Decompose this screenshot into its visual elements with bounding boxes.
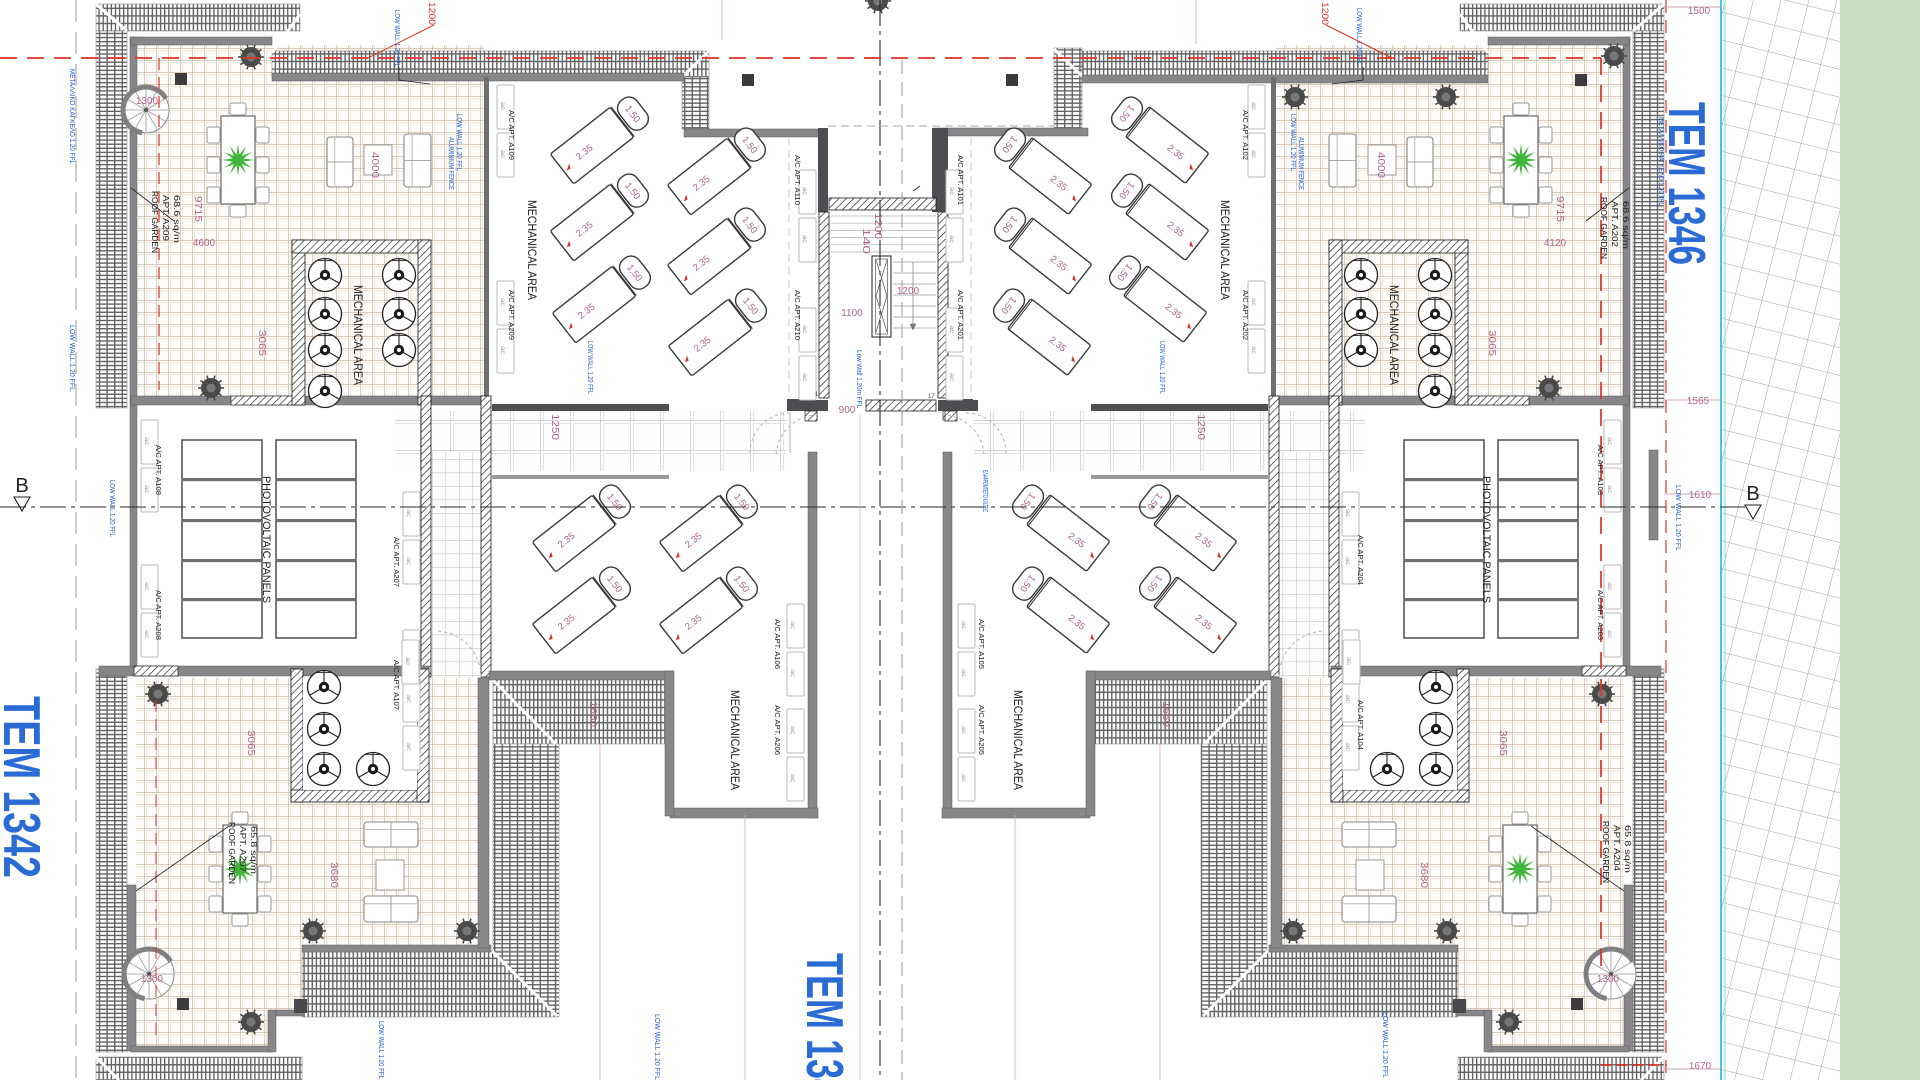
svg-text:ALUMINIUM FENCE: ALUMINIUM FENCE (1297, 137, 1306, 190)
svg-text:LOW WALL 1.20 FFL: LOW WALL 1.20 FFL (586, 341, 595, 394)
svg-text:140: 140 (860, 228, 871, 255)
svg-text:1100: 1100 (841, 308, 863, 319)
svg-text:A/C APT. A205: A/C APT. A205 (977, 705, 984, 755)
svg-text:A/C APT. A106: A/C APT. A106 (773, 619, 780, 669)
svg-text:ac: ac (1250, 346, 1257, 355)
svg-text:ac: ac (789, 621, 796, 630)
svg-text:A/C APT. A108: A/C APT. A108 (154, 445, 161, 495)
svg-text:ac: ac (960, 621, 967, 630)
svg-text:MECHANICAL AREA: MECHANICAL AREA (1218, 200, 1230, 300)
svg-text:ac: ac (1606, 630, 1613, 639)
svg-text:17: 17 (928, 394, 935, 400)
svg-text:ROOF GARDEN: ROOF GARDEN (227, 822, 236, 884)
svg-text:ac: ac (405, 743, 412, 752)
svg-text:68.6 sq/m: 68.6 sq/m (172, 195, 181, 243)
svg-text:Low Wall 1.20m FFL: Low Wall 1.20m FFL (855, 350, 864, 408)
svg-text:A/C APT. A202: A/C APT. A202 (1241, 290, 1248, 340)
svg-text:3680: 3680 (1418, 862, 1429, 889)
svg-text:A/C APT. A109: A/C APT. A109 (507, 110, 514, 160)
svg-text:ac: ac (789, 669, 796, 678)
svg-text:ac: ac (1606, 485, 1613, 494)
svg-text:B: B (1746, 483, 1759, 505)
svg-text:A/C APT. A105: A/C APT. A105 (977, 619, 984, 669)
svg-text:ac: ac (1606, 582, 1613, 591)
svg-text:1250: 1250 (1195, 414, 1206, 441)
svg-text:3065: 3065 (1486, 330, 1497, 357)
svg-text:APT. A207: APT. A207 (238, 826, 247, 873)
svg-text:LOW WALL 1.20 FFL: LOW WALL 1.20 FFL (1674, 485, 1683, 551)
svg-text:3680: 3680 (328, 862, 339, 889)
svg-text:B: B (15, 475, 28, 497)
svg-text:ac: ac (499, 102, 506, 111)
svg-text:A/C APT. A206: A/C APT. A206 (773, 705, 780, 755)
svg-text:LOW WALL 1.20 FFL: LOW WALL 1.20 FFL (1355, 8, 1364, 65)
svg-text:1300: 1300 (1597, 974, 1620, 985)
svg-text:3065: 3065 (256, 330, 267, 357)
svg-text:1200: 1200 (872, 213, 883, 240)
svg-text:1250: 1250 (549, 414, 560, 441)
svg-text:LOW WALL 1.20 FFL: LOW WALL 1.20 FFL (108, 480, 117, 537)
svg-text:1610: 1610 (1689, 490, 1712, 501)
svg-text:ac: ac (143, 630, 150, 639)
svg-text:ac: ac (405, 695, 412, 704)
svg-text:ac: ac (1250, 150, 1257, 159)
svg-text:ac: ac (1344, 509, 1351, 518)
svg-text:A/C APT. A209: A/C APT. A209 (507, 290, 514, 340)
svg-text:ac: ac (1606, 437, 1613, 446)
svg-text:ac: ac (1250, 298, 1257, 307)
svg-text:ac: ac (143, 437, 150, 446)
svg-text:A/C APT. A107: A/C APT. A107 (392, 660, 399, 710)
svg-text:A/C APT. A210: A/C APT. A210 (793, 290, 800, 340)
svg-text:ROOF GARDEN: ROOF GARDEN (1601, 821, 1610, 883)
svg-text:1200: 1200 (1320, 2, 1330, 25)
svg-text:1200: 1200 (427, 2, 437, 25)
svg-text:1300: 1300 (141, 974, 164, 985)
svg-text:ac: ac (948, 187, 955, 196)
svg-text:ac: ac (789, 726, 796, 735)
svg-text:ROOF GARDEN: ROOF GARDEN (1599, 197, 1608, 259)
svg-text:9715: 9715 (192, 196, 203, 223)
svg-text:1670: 1670 (1689, 1061, 1712, 1072)
svg-text:LOW WALL 1.20 FFL: LOW WALL 1.20 FFL (377, 1021, 386, 1079)
svg-text:1650: 1650 (587, 701, 598, 728)
svg-text:APT. A202: APT. A202 (1610, 201, 1619, 248)
svg-text:4600: 4600 (193, 238, 216, 249)
svg-text:ΜΕΤΑΛΛΙΚΟ ΚΑΓΚΕΛΟ 1.20 FFL: ΜΕΤΑΛΛΙΚΟ ΚΑΓΚΕΛΟ 1.20 FFL (1657, 117, 1666, 206)
svg-text:ac: ac (960, 726, 967, 735)
svg-text:A/C APT. A208: A/C APT. A208 (154, 590, 161, 640)
svg-text:ac: ac (499, 298, 506, 307)
svg-text:1500: 1500 (1688, 6, 1711, 17)
svg-text:ac: ac (1250, 102, 1257, 111)
svg-text:3065: 3065 (245, 730, 256, 757)
svg-text:1200: 1200 (897, 286, 920, 297)
svg-text:APT. A204: APT. A204 (1612, 825, 1621, 872)
svg-text:A/C APT. A204: A/C APT. A204 (1356, 535, 1363, 585)
svg-text:LOW WALL 1.20 FFL: LOW WALL 1.20 FFL (653, 1014, 662, 1080)
svg-text:A/C APT. A101: A/C APT. A101 (956, 155, 963, 205)
svg-text:ΕΛΑΦΡΟΜΠΕΤΟ ΚΛΙΣΕΙΣ: ΕΛΑΦΡΟΜΠΕΤΟ ΚΛΙΣΕΙΣ (981, 470, 990, 512)
svg-text:ac: ac (143, 582, 150, 591)
svg-text:1300: 1300 (136, 96, 159, 107)
svg-text:1565: 1565 (1687, 396, 1710, 407)
svg-text:ac: ac (960, 669, 967, 678)
svg-text:A/C APT. A103: A/C APT. A103 (1596, 445, 1603, 495)
svg-text:4000: 4000 (369, 152, 380, 179)
svg-text:ac: ac (1344, 557, 1351, 566)
svg-text:ac: ac (789, 774, 796, 783)
svg-text:3065: 3065 (1497, 730, 1508, 757)
svg-text:ac: ac (1345, 657, 1352, 666)
svg-text:ac: ac (948, 373, 955, 382)
svg-text:MECHANICAL AREA: MECHANICAL AREA (1387, 285, 1399, 385)
svg-text:1650: 1650 (1160, 701, 1171, 728)
svg-text:4120: 4120 (1544, 238, 1567, 249)
svg-text:LOW WALL 1.20 FFL: LOW WALL 1.20 FFL (1289, 114, 1298, 171)
svg-text:ac: ac (499, 150, 506, 159)
svg-text:ac: ac (1344, 743, 1351, 752)
svg-text:ROOF GARDEN: ROOF GARDEN (150, 191, 159, 253)
svg-text:LOW WALL 1.20 FFL: LOW WALL 1.20 FFL (1158, 341, 1167, 394)
svg-text:ac: ac (499, 346, 506, 355)
svg-text:LOW WALL 1.20 FFL: LOW WALL 1.20 FFL (1381, 1012, 1390, 1078)
svg-text:A/C APT. A203: A/C APT. A203 (1596, 590, 1603, 640)
svg-text:ac: ac (960, 774, 967, 783)
svg-text:ΜΕΤΑΛΛΙΚΟ ΚΑΓΚΕΛΟ 1.20 FFL: ΜΕΤΑΛΛΙΚΟ ΚΑΓΚΕΛΟ 1.20 FFL (68, 69, 77, 164)
svg-text:TEM 1342: TEM 1342 (0, 696, 50, 878)
svg-text:ac: ac (801, 187, 808, 196)
svg-text:ac: ac (948, 325, 955, 334)
svg-text:LOW WALL 1.20 FFL: LOW WALL 1.20 FFL (68, 325, 77, 391)
svg-text:A/C APT. A201: A/C APT. A201 (956, 290, 963, 340)
svg-text:65.8 sq/m: 65.8 sq/m (1623, 825, 1632, 873)
svg-text:ac: ac (405, 509, 412, 518)
svg-text:LOW WALL 1.20 FFL: LOW WALL 1.20 FFL (393, 10, 402, 67)
svg-text:ac: ac (404, 657, 411, 666)
svg-text:APT. A209: APT. A209 (161, 195, 170, 242)
svg-text:ac: ac (801, 325, 808, 334)
svg-text:9715: 9715 (1554, 196, 1565, 223)
svg-text:ac: ac (948, 235, 955, 244)
svg-text:MECHANICAL AREA: MECHANICAL AREA (351, 285, 363, 385)
svg-text:4000: 4000 (1375, 152, 1386, 179)
svg-text:A/C APT. A102: A/C APT. A102 (1241, 110, 1248, 160)
svg-text:ac: ac (1344, 695, 1351, 704)
svg-text:MECHANICAL AREA: MECHANICAL AREA (1011, 690, 1023, 790)
svg-text:A/C APT. A207: A/C APT. A207 (392, 537, 399, 587)
svg-text:ac: ac (143, 485, 150, 494)
svg-text:A/C APT. A104: A/C APT. A104 (1356, 700, 1363, 750)
svg-text:900: 900 (839, 405, 856, 416)
svg-text:MECHANICAL AREA: MECHANICAL AREA (525, 200, 537, 300)
svg-text:ac: ac (801, 373, 808, 382)
svg-text:ALUMINIUM FENCE: ALUMINIUM FENCE (447, 137, 456, 190)
svg-text:ac: ac (801, 235, 808, 244)
svg-text:PHOTOVOLTAIC PANELS: PHOTOVOLTAIC PANELS (260, 476, 272, 603)
svg-text:65.8 sq/m: 65.8 sq/m (249, 826, 258, 874)
svg-text:A/C APT. A110: A/C APT. A110 (793, 155, 800, 205)
svg-text:68.6 sq/m: 68.6 sq/m (1621, 201, 1630, 249)
svg-text:MECHANICAL AREA: MECHANICAL AREA (728, 690, 740, 790)
svg-text:PHOTOVOLTAIC PANELS: PHOTOVOLTAIC PANELS (1480, 476, 1492, 603)
svg-text:TEM 1344: TEM 1344 (795, 953, 853, 1080)
svg-text:ac: ac (405, 557, 412, 566)
